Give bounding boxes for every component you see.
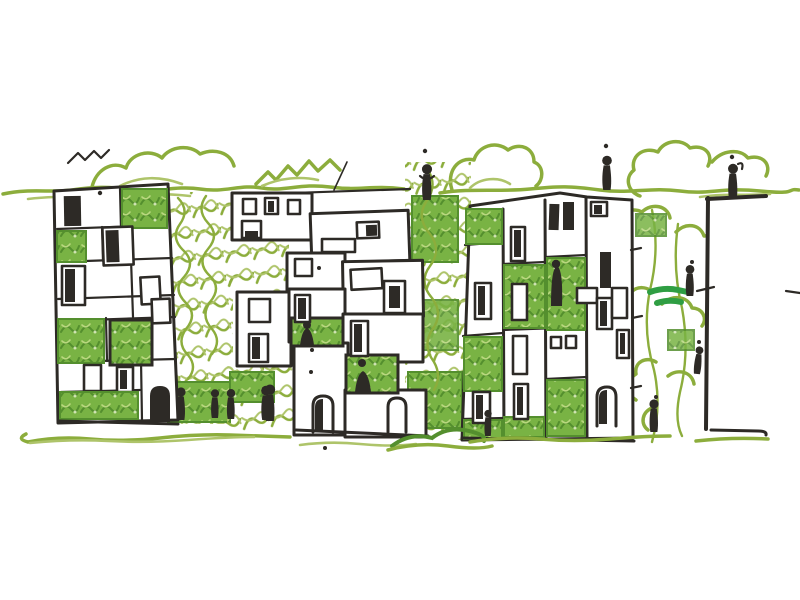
window (295, 259, 312, 276)
green-window (110, 320, 152, 365)
window-shadow (366, 225, 377, 236)
window (612, 288, 627, 318)
window-shadow (298, 298, 306, 319)
window-shadow (600, 301, 607, 326)
green-panel (547, 380, 585, 436)
window-shadow (594, 205, 602, 214)
green-panel (466, 209, 502, 244)
dark-window (600, 252, 611, 288)
green-balcony (122, 189, 167, 228)
window-shadow (120, 370, 127, 389)
tiny-window (551, 337, 561, 348)
street-figure (176, 387, 185, 420)
dark-window (563, 202, 574, 230)
pen-dot (654, 395, 658, 399)
window (84, 365, 101, 391)
window-shadow (389, 286, 400, 308)
dark-arch-door (150, 386, 170, 422)
tiny-window (243, 199, 256, 214)
window-shadow (252, 337, 260, 359)
window-shadow (354, 324, 362, 352)
window-shadow (620, 333, 625, 354)
pen-dot (317, 266, 321, 270)
green-planter (60, 392, 138, 419)
balcony-figure-head (303, 321, 311, 329)
tree-arcs (92, 148, 234, 187)
vegetation-hatch (229, 240, 289, 293)
street-figure (227, 389, 235, 419)
building-4-base-line (711, 430, 766, 435)
building-1 (54, 184, 178, 424)
street-figure (484, 410, 491, 436)
tree-cloud-center-under (470, 179, 510, 188)
hedge-figure (261, 386, 271, 420)
tiny-window (566, 336, 576, 348)
rooftop-figure-block4 (728, 155, 742, 199)
balcony-figure-head (358, 359, 366, 367)
arch-door-shadow (599, 390, 607, 424)
ground-stroke-far-right (696, 438, 768, 441)
room-box (345, 390, 426, 437)
window-shadow (245, 231, 258, 237)
window-shadow (514, 230, 521, 257)
leaf-patch (668, 330, 694, 350)
window-shadow (476, 395, 483, 419)
sketch-page (0, 0, 800, 600)
bright-green-stroke (650, 289, 690, 292)
window-shadow (478, 286, 485, 315)
building-2 (227, 189, 428, 437)
ink-treetop-squiggle (68, 150, 109, 163)
bright-green-stroke (657, 301, 681, 303)
arch-door-shadow (315, 399, 323, 430)
pen-dot (309, 370, 313, 374)
window (513, 336, 527, 374)
window-shadow (65, 269, 75, 302)
dark-window (549, 204, 560, 230)
street-figure (211, 389, 219, 418)
building-3 (462, 193, 642, 441)
rooftop-figure-block3 (602, 144, 612, 190)
dark-window (64, 196, 82, 226)
tree-zigzag (256, 160, 340, 184)
building-4-edge-line (706, 198, 708, 429)
pen-dot (98, 191, 102, 195)
green-window (346, 355, 398, 393)
leaf-patch (636, 214, 666, 236)
green-balcony (57, 231, 86, 262)
pen-dot (730, 155, 734, 159)
pen-dot (604, 144, 608, 148)
pen-dot (310, 348, 314, 352)
building-4 (697, 196, 800, 435)
ground-stroke-tuft (388, 445, 492, 450)
window-shadow (105, 230, 119, 262)
pen-dot (697, 340, 701, 344)
window-shadow (517, 387, 523, 415)
tiny-window (288, 200, 300, 214)
green-balcony (58, 319, 104, 363)
window (249, 299, 270, 322)
green-panel (464, 337, 502, 391)
hedge-line-right (440, 187, 799, 193)
pen-dot (323, 446, 327, 450)
window-shadow (268, 201, 274, 212)
cloud-stroke (628, 142, 709, 196)
window (350, 268, 382, 290)
pen-dot (423, 149, 427, 153)
pen-dot (690, 260, 694, 264)
window (577, 288, 597, 303)
architectural-sketch-canvas (0, 0, 800, 600)
figure-curl (738, 163, 743, 169)
building-4-face (706, 196, 800, 431)
window (152, 299, 171, 324)
window (322, 239, 355, 252)
window (512, 284, 527, 320)
